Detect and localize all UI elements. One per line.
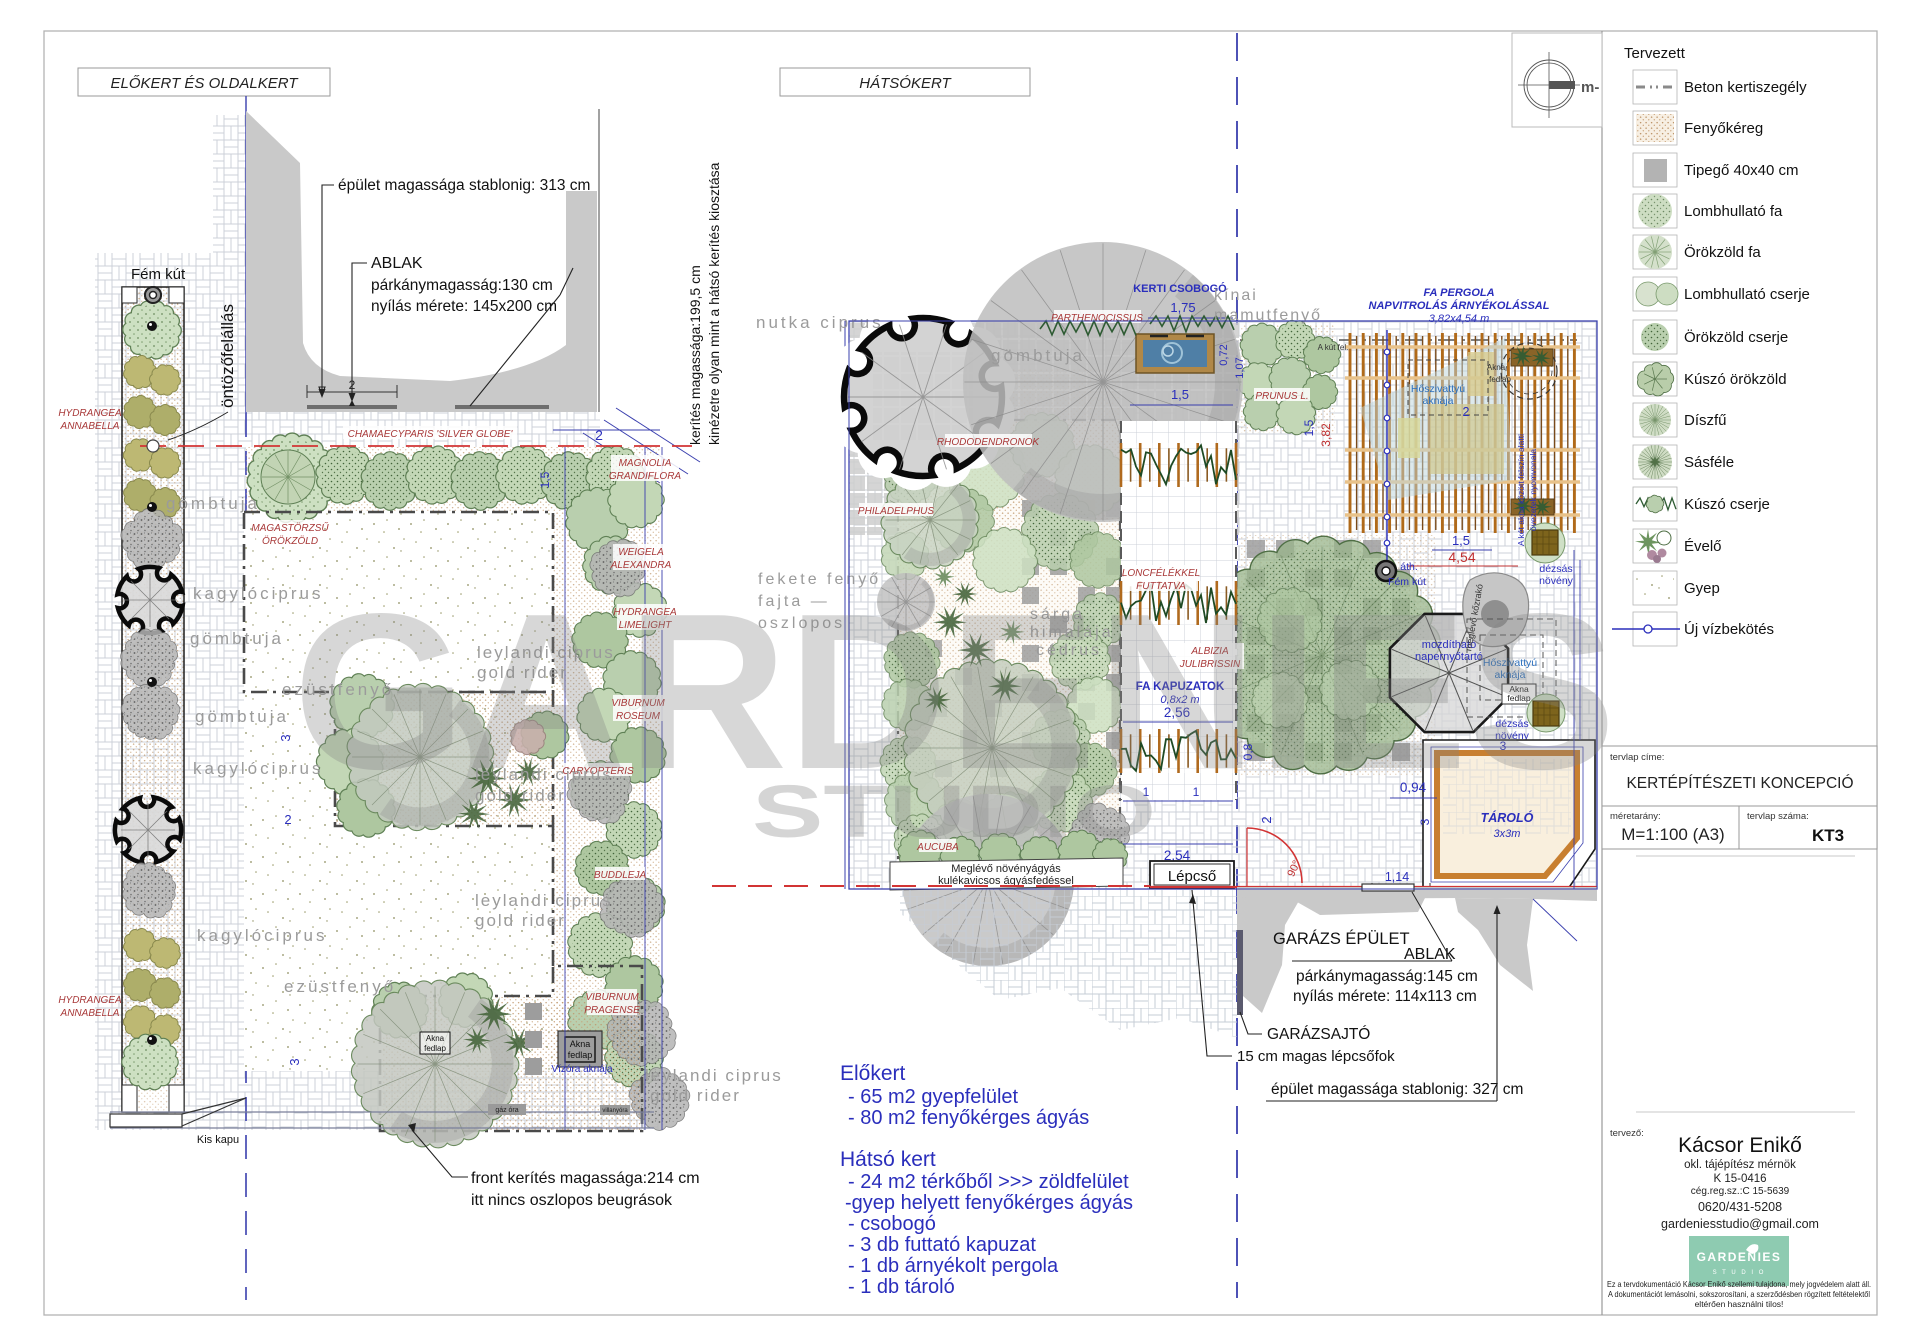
svg-text:m-: m- (1581, 79, 1599, 96)
svg-text:Hőszivattyú: Hőszivattyú (1411, 383, 1465, 395)
svg-text:ANNABELLA: ANNABELLA (60, 1008, 120, 1019)
svg-text:Díszfű: Díszfű (1684, 412, 1727, 429)
svg-text:ÖRÖKZÖLD: ÖRÖKZÖLD (262, 535, 318, 547)
svg-text:Örökzöld fa: Örökzöld fa (1684, 243, 1761, 261)
svg-text:eltérően használni tilos!: eltérően használni tilos! (1695, 1299, 1784, 1309)
svg-text:kagylóciprus: kagylóciprus (197, 926, 328, 945)
svg-text:gömbtuja: gömbtuja (166, 494, 260, 513)
svg-text:3: 3 (287, 1058, 302, 1065)
svg-text:GARDENIES: GARDENIES (1697, 1250, 1782, 1264)
svg-text:fedlap: fedlap (1489, 375, 1511, 384)
svg-text:fedlap: fedlap (424, 1044, 446, 1053)
svg-text:- 80 m2 fenyőkérges ágyás: - 80 m2 fenyőkérges ágyás (848, 1107, 1089, 1129)
svg-text:kerítés magassága:199,5 cm: kerítés magassága:199,5 cm (687, 265, 703, 445)
svg-text:GRANDIFLORA: GRANDIFLORA (609, 471, 682, 482)
svg-text:0620/431-5208: 0620/431-5208 (1698, 1200, 1782, 1214)
svg-text:villanyóra: villanyóra (602, 1108, 628, 1114)
svg-text:nyílás mérete: 114x113 cm: nyílás mérete: 114x113 cm (1293, 988, 1477, 1005)
svg-text:1,07: 1,07 (1234, 357, 1246, 378)
svg-text:Kis kapu: Kis kapu (197, 1134, 239, 1146)
svg-text:1,5: 1,5 (1302, 419, 1316, 436)
svg-text:ABLAK: ABLAK (371, 255, 423, 272)
svg-text:nutka ciprus: nutka ciprus (756, 313, 884, 332)
svg-text:1,5: 1,5 (1452, 533, 1470, 548)
svg-text:- 1 db tároló: - 1 db tároló (848, 1276, 955, 1298)
svg-text:1,14: 1,14 (1385, 870, 1409, 884)
svg-text:kinézetre olyan mint a hátsó k: kinézetre olyan mint a hátsó kerítés kio… (706, 162, 722, 445)
svg-text:STUDIO: STUDIO (752, 770, 1156, 853)
svg-text:1,75: 1,75 (1170, 300, 1195, 315)
svg-text:aknája: aknája (1423, 395, 1454, 407)
svg-text:ezüstfenyő: ezüstfenyő (284, 977, 396, 996)
svg-text:3x3m: 3x3m (1494, 828, 1521, 840)
svg-text:gömbtuja: gömbtuja (190, 629, 284, 648)
svg-text:2: 2 (284, 812, 291, 827)
svg-text:PHILADELPHUS: PHILADELPHUS (858, 506, 934, 517)
svg-text:-gyep helyett fenyőkérges ágyá: -gyep helyett fenyőkérges ágyás (845, 1192, 1133, 1214)
svg-text:Örökzöld cserje: Örökzöld cserje (1684, 328, 1788, 346)
svg-text:3,82: 3,82 (1319, 423, 1333, 447)
svg-text:okl. tájépítész mérnök: okl. tájépítész mérnök (1684, 1159, 1796, 1171)
svg-text:övezetek nyomvonala: övezetek nyomvonala (1528, 449, 1538, 531)
svg-text:KERTÉPÍTÉSZETI KONCEPCIÓ: KERTÉPÍTÉSZETI KONCEPCIÓ (1626, 775, 1853, 792)
svg-text:HYDRANGEA: HYDRANGEA (58, 995, 122, 1006)
svg-text:Gyep: Gyep (1684, 580, 1720, 597)
svg-text:Kúszó örökzöld: Kúszó örökzöld (1684, 371, 1787, 388)
svg-text:tervező:: tervező: (1610, 1128, 1644, 1139)
svg-text:ANNABELLA: ANNABELLA (60, 421, 120, 432)
svg-text:Akna: Akna (1487, 363, 1506, 372)
svg-text:Lombhullató cserje: Lombhullató cserje (1684, 286, 1810, 303)
svg-text:NAPVITROLÁS ÁRNYÉKOLÁSSAL: NAPVITROLÁS ÁRNYÉKOLÁSSAL (1369, 299, 1550, 312)
svg-text:RHODODENDRONOK: RHODODENDRONOK (937, 437, 1041, 448)
svg-text:kínai: kínai (1214, 287, 1258, 304)
svg-text:Tipegő 40x40 cm: Tipegő 40x40 cm (1684, 162, 1799, 179)
svg-text:- 65 m2 gyepfelület: - 65 m2 gyepfelület (848, 1086, 1019, 1108)
svg-text:4,54: 4,54 (1448, 549, 1475, 565)
svg-text:GARÁZS ÉPÜLET: GARÁZS ÉPÜLET (1273, 929, 1410, 948)
svg-text:Vízóra aknája: Vízóra aknája (551, 1064, 613, 1075)
svg-text:Ez a tervdokumentáció Kácsor E: Ez a tervdokumentáció Kácsor Enikő szell… (1607, 1279, 1871, 1289)
svg-text:gömbtuja: gömbtuja (991, 346, 1085, 365)
svg-text:Kúszó cserje: Kúszó cserje (1684, 496, 1770, 513)
svg-text:épület magassága stablonig: 31: épület magassága stablonig: 313 cm (338, 177, 590, 194)
svg-text:GARÁZSAJTÓ: GARÁZSAJTÓ (1267, 1026, 1370, 1043)
svg-text:A két akna között felszín ala: A két akna között felszín alatti (1516, 434, 1526, 546)
svg-text:PRAGENSE: PRAGENSE (584, 1005, 640, 1016)
svg-text:méretarány:: méretarány: (1610, 811, 1661, 822)
svg-text:MAGNOLIA: MAGNOLIA (619, 458, 672, 469)
svg-text:öntözőfelállás: öntözőfelállás (218, 304, 237, 408)
svg-text:M=1:100 (A3): M=1:100 (A3) (1621, 825, 1724, 844)
svg-text:gold rider: gold rider (650, 1086, 741, 1105)
svg-text:3: 3 (278, 734, 293, 741)
svg-text:Kácsor Enikő: Kácsor Enikő (1678, 1134, 1802, 1157)
svg-text:Akna: Akna (426, 1034, 445, 1043)
svg-text:tervlap címe:: tervlap címe: (1610, 752, 1664, 763)
svg-text:2: 2 (1259, 816, 1274, 823)
svg-text:2: 2 (1463, 405, 1470, 419)
svg-text:cég.reg.sz.:C 15-5639: cég.reg.sz.:C 15-5639 (1691, 1186, 1790, 1197)
svg-text:ELŐKERT ÉS OLDALKERT: ELŐKERT ÉS OLDALKERT (110, 75, 299, 92)
svg-text:1,5: 1,5 (1171, 387, 1189, 402)
svg-text:MAGASTÖRZSŰ: MAGASTÖRZSŰ (251, 520, 329, 534)
svg-text:tervlap száma:: tervlap száma: (1747, 811, 1809, 822)
svg-text:gömbtuja: gömbtuja (195, 707, 289, 726)
svg-text:Új vízbekötés: Új vízbekötés (1684, 621, 1774, 638)
svg-text:A dokumentációt lemásolni, sok: A dokumentációt lemásolni, sokszorosítan… (1608, 1289, 1870, 1299)
svg-text:Beton kertiszegély: Beton kertiszegély (1684, 79, 1807, 96)
svg-text:itt nincs oszlopos beugrások: itt nincs oszlopos beugrások (471, 1192, 673, 1209)
svg-text:- 3 db futtató kapuzat: - 3 db futtató kapuzat (848, 1234, 1036, 1256)
svg-text:párkánymagasság:130 cm: párkánymagasság:130 cm (371, 277, 553, 294)
svg-text:A kút fel.: A kút fel. (1318, 343, 1349, 352)
svg-text:Évelő: Évelő (1684, 538, 1722, 555)
svg-text:15 cm magas lépcsőfok: 15 cm magas lépcsőfok (1237, 1048, 1395, 1065)
svg-text:Lombhullató fa: Lombhullató fa (1684, 203, 1783, 220)
svg-text:Sásféle: Sásféle (1684, 454, 1734, 471)
svg-text:VIBURNUM: VIBURNUM (585, 992, 639, 1003)
svg-text:HÁTSÓKERT: HÁTSÓKERT (859, 75, 952, 92)
svg-text:- csobogó: - csobogó (848, 1213, 936, 1235)
svg-text:Fém kút: Fém kút (131, 266, 186, 283)
svg-text:Előkert: Előkert (840, 1062, 906, 1085)
svg-text:leylandi ciprus: leylandi ciprus (475, 891, 613, 910)
svg-text:2: 2 (595, 427, 603, 443)
svg-text:nyílás mérete: 145x200 cm: nyílás mérete: 145x200 cm (371, 298, 557, 315)
svg-text:Meglévő növényágyás: Meglévő növényágyás (951, 863, 1061, 875)
svg-text:- 24 m2 térkőből >>> zöldfelül: - 24 m2 térkőből >>> zöldfelület (848, 1171, 1129, 1193)
svg-text:gáz óra: gáz óra (495, 1107, 518, 1114)
svg-text:fedlap: fedlap (568, 1050, 593, 1060)
svg-text:Tervezett: Tervezett (1624, 45, 1686, 62)
svg-text:1,5: 1,5 (538, 471, 552, 488)
svg-text:épület magassága stablonig: 32: épület magassága stablonig: 327 cm (1271, 1081, 1523, 1098)
svg-text:Fenyőkéreg: Fenyőkéreg (1684, 120, 1763, 137)
svg-text:K 15-0416: K 15-0416 (1713, 1173, 1766, 1185)
svg-text:front kerítés magassága:214 cm: front kerítés magassága:214 cm (471, 1170, 700, 1187)
svg-text:KT3: KT3 (1812, 826, 1844, 845)
svg-text:BUDDLEJA: BUDDLEJA (594, 870, 647, 881)
svg-text:párkánymagasság:145 cm: párkánymagasság:145 cm (1296, 968, 1478, 985)
svg-text:HYDRANGEA: HYDRANGEA (58, 408, 122, 419)
svg-text:3,82x4,54 m: 3,82x4,54 m (1429, 313, 1490, 325)
svg-text:Hátsó kert: Hátsó kert (840, 1148, 936, 1171)
svg-text:gardeniesstudio@gmail.com: gardeniesstudio@gmail.com (1661, 1217, 1819, 1231)
svg-text:Akna: Akna (570, 1039, 591, 1049)
svg-text:PRUNUS L.: PRUNUS L. (1255, 391, 1308, 402)
svg-text:WEIGELA: WEIGELA (618, 547, 664, 558)
svg-text:CHAMAECYPARIS 'SILVER GLOBE': CHAMAECYPARIS 'SILVER GLOBE' (348, 429, 514, 440)
svg-text:FA PERGOLA: FA PERGOLA (1423, 287, 1494, 299)
svg-text:3: 3 (1418, 818, 1432, 825)
svg-text:leylandi ciprus: leylandi ciprus (645, 1066, 783, 1085)
svg-text:0,72: 0,72 (1218, 344, 1230, 365)
svg-text:Lépcső: Lépcső (1168, 868, 1216, 885)
svg-text:gold rider: gold rider (475, 911, 566, 930)
svg-text:S T U D I O: S T U D I O (1713, 1270, 1766, 1276)
svg-text:- 1 db árnyékolt pergola: - 1 db árnyékolt pergola (848, 1255, 1059, 1277)
